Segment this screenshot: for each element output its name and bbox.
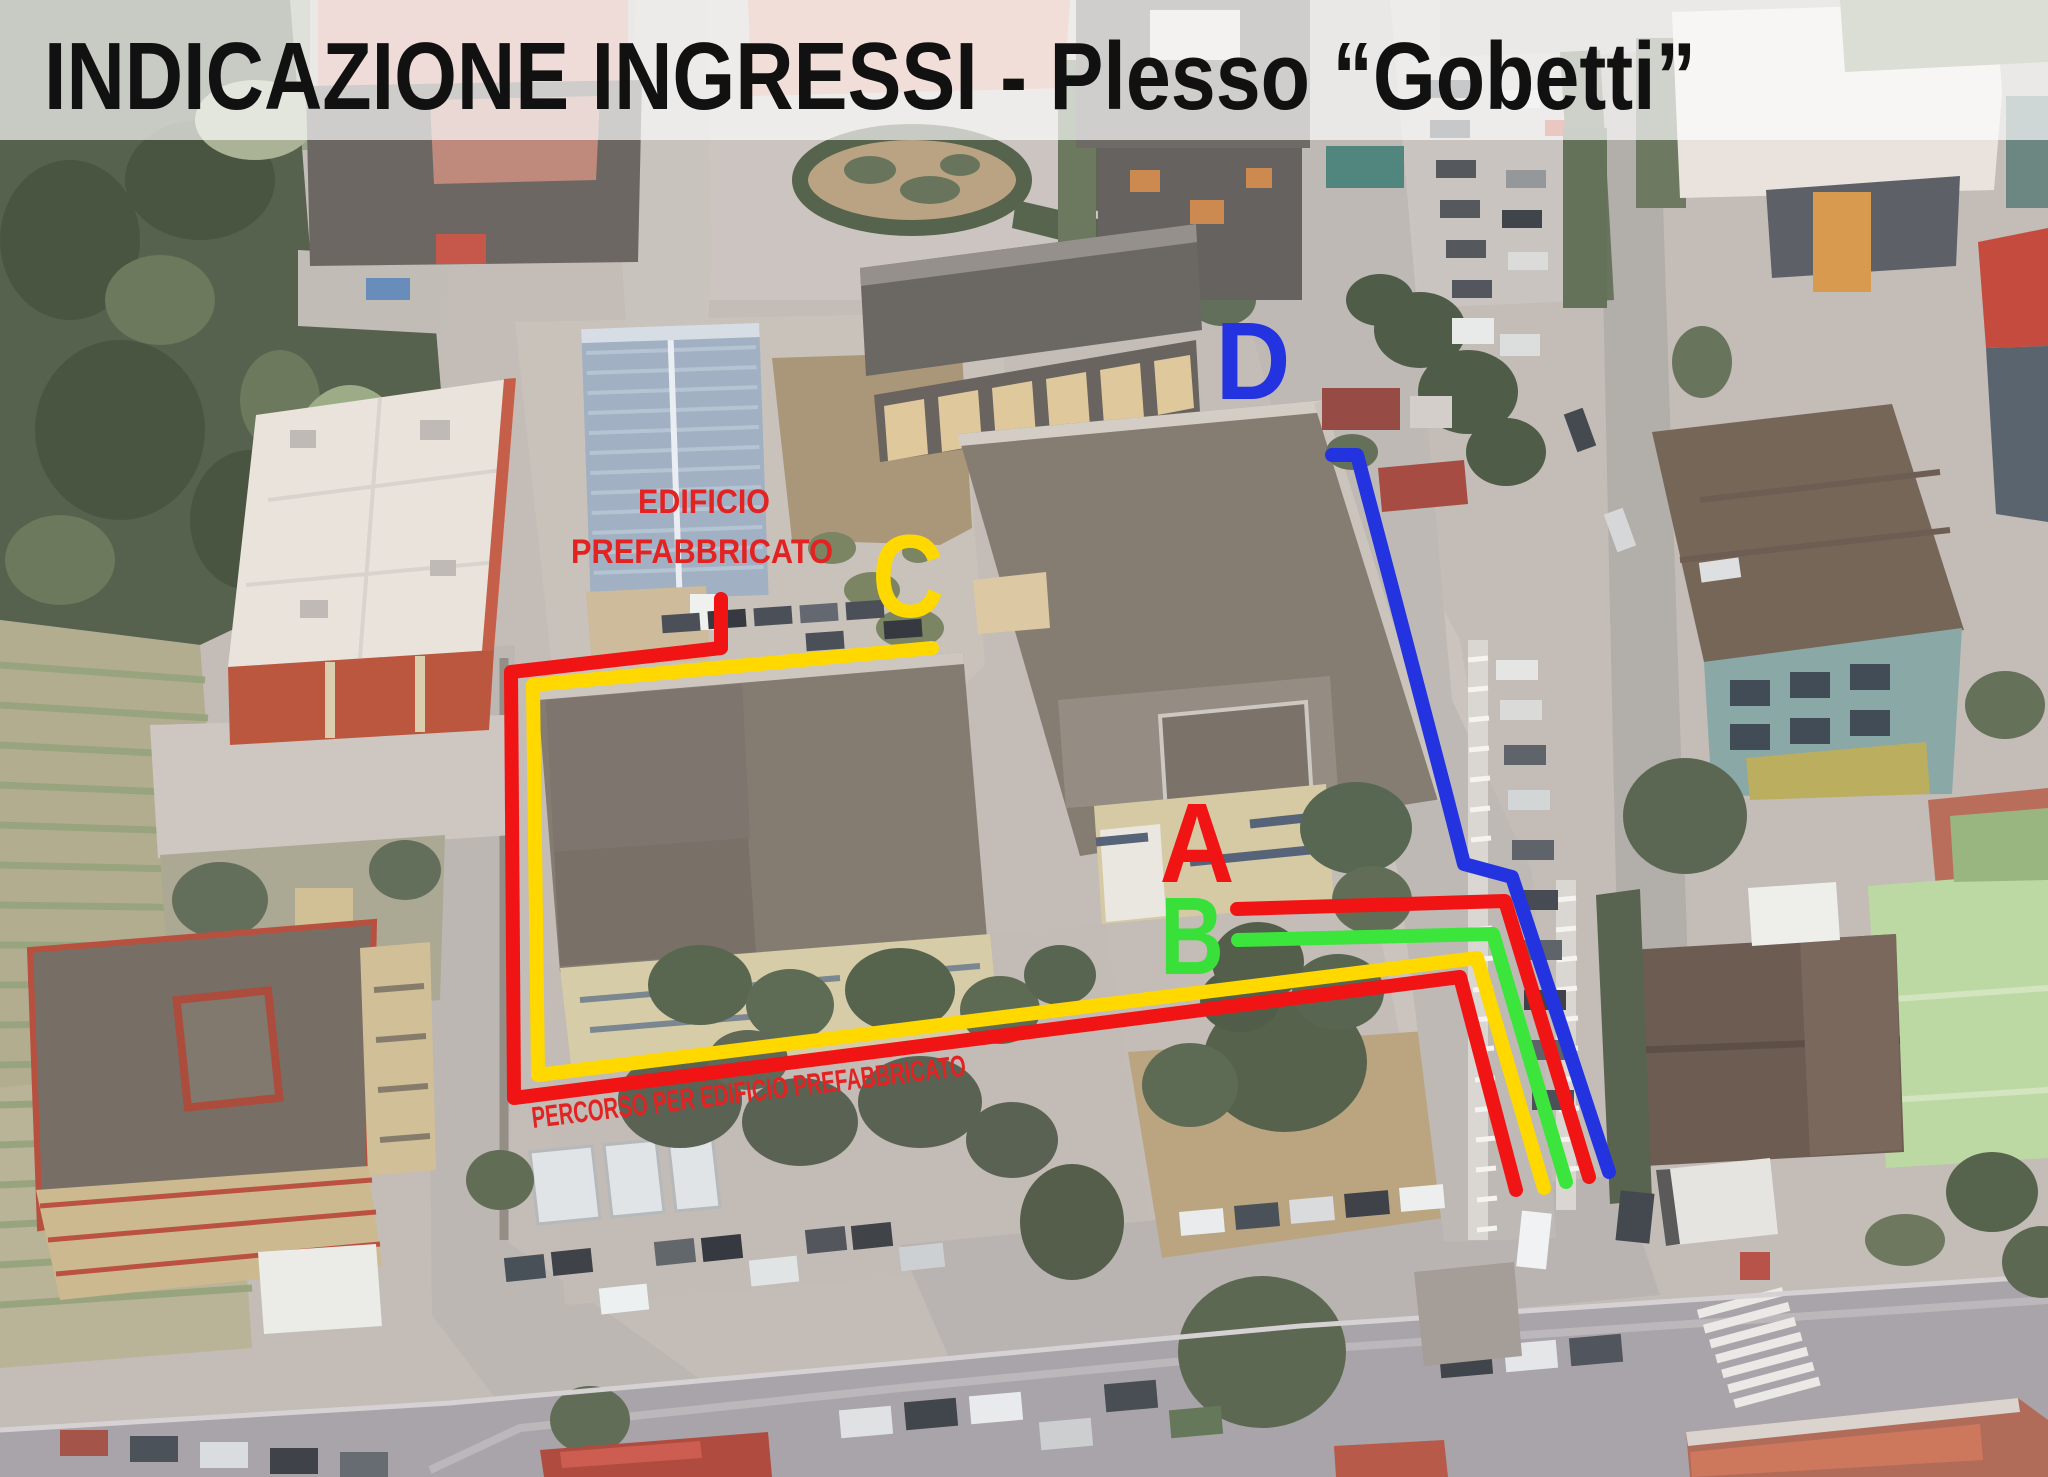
svg-text:D: D: [1216, 300, 1291, 423]
svg-text:INDICAZIONE INGRESSI - Plesso: INDICAZIONE INGRESSI - Plesso “Gobetti”: [44, 23, 1696, 130]
svg-text:B: B: [1160, 875, 1224, 998]
svg-text:PREFABBRICATO: PREFABBRICATO: [571, 533, 833, 571]
svg-text:EDIFICIO: EDIFICIO: [638, 483, 770, 521]
svg-text:C: C: [872, 511, 944, 643]
